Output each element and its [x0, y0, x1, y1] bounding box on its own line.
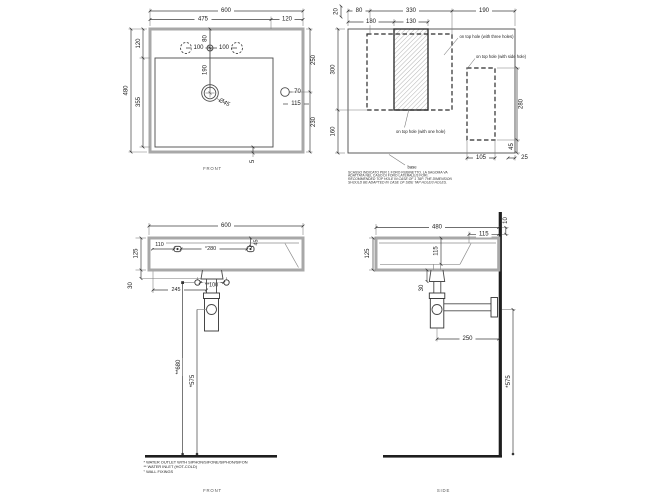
- floor-line-side: [383, 455, 502, 458]
- side-drain-deck: [429, 270, 444, 282]
- side-trap-nut: [429, 293, 445, 299]
- dim-tap-pitch-left: 100: [193, 45, 204, 51]
- note-side-hole: on top hole (with side hole): [476, 54, 527, 59]
- plan-view: 100 100 80 190 Ø45 70 115 600 475 120: [124, 8, 318, 171]
- side-trap-body: [430, 299, 444, 329]
- dim-bowl-height: 355: [136, 96, 142, 107]
- dim-top-offset: 20: [334, 8, 340, 15]
- recommended-hole-hatched: [394, 29, 428, 110]
- dim-fixing-pitch: °280: [205, 246, 216, 252]
- front-elevation-label: FRONT: [203, 488, 222, 493]
- dim-back-deck: 115: [479, 231, 489, 237]
- note-one-hole: on top hole (with one hole): [396, 129, 446, 134]
- dim-front-width: 600: [221, 223, 232, 229]
- dim-inlet-height: **680: [176, 359, 182, 374]
- dim-side-cutout-edge: 25: [521, 155, 528, 161]
- dim-depth: 480: [432, 225, 443, 231]
- dim-overflow-to-bottom: 230: [311, 116, 317, 127]
- floor-line-front: [145, 455, 277, 458]
- dim-tap-pitch-right: 100: [219, 45, 230, 51]
- dim-hatch-width: 130: [406, 19, 417, 25]
- dim-outlet-height-front: *575: [190, 374, 196, 387]
- dim-plan-width: 600: [221, 8, 232, 14]
- side-hole-cutout-dashed: [467, 68, 495, 140]
- dim-left-to-hatch: 180: [366, 19, 377, 25]
- dim-trap-reach: 250: [462, 336, 473, 342]
- dim-cutout-height: 300: [331, 64, 337, 75]
- dim-bowl-width: 475: [198, 17, 209, 23]
- front-elevation-view: 600 125 30 110 °280 45 **100 245: [128, 223, 303, 493]
- dim-side-cutout-bottom: 45: [509, 143, 515, 150]
- dim-tap-to-drain: 190: [203, 64, 209, 75]
- dim-fixing-left: 110: [155, 242, 164, 248]
- dim-bowl-depth: 115: [433, 246, 439, 256]
- note-base: base: [408, 165, 418, 170]
- dim-cutout-span: 330: [406, 8, 417, 14]
- water-inlet-right: [224, 280, 229, 285]
- dim-wall-gap: 10: [503, 217, 509, 224]
- dim-left-to-cutout: 80: [356, 8, 363, 14]
- trap-nut: [204, 293, 220, 299]
- caption-en-line2: SHOULD BE ADAPTED IN CASE OF SIDE TAP HO…: [348, 181, 447, 185]
- dim-drain-offset: 245: [172, 287, 181, 293]
- wall-outlet-flange: [491, 298, 498, 318]
- technical-drawing-sheet: 100 100 80 190 Ø45 70 115 600 475 120: [0, 0, 667, 500]
- dim-fixing-drop: 45: [254, 240, 260, 246]
- note-three-holes: on top hole (with three holes): [460, 34, 515, 39]
- plan-view-label: FRONT: [203, 166, 222, 171]
- dim-top-to-overflow: 250: [311, 54, 317, 65]
- dim-overflow-inset: 115: [291, 101, 301, 107]
- template-view: 80 330 190 20 180 130 300 160 280 45: [331, 6, 529, 185]
- dim-bottom-wall: 5: [250, 159, 256, 163]
- dim-right-span: 190: [479, 8, 490, 14]
- template-base-outline: [348, 29, 515, 153]
- dim-rim-depth: 120: [136, 38, 142, 49]
- side-elevation-view: 480 115 10 125 115 30 250: [365, 212, 516, 493]
- dim-outlet-height-side: *575: [506, 375, 512, 388]
- dim-deck-width: 120: [282, 17, 293, 23]
- dim-apron: 30: [128, 282, 134, 289]
- dim-side-cutout-height: 280: [519, 98, 525, 109]
- dim-side-cutout-width: 105: [476, 155, 487, 161]
- drawing-canvas: 100 100 80 190 Ø45 70 115 600 475 120: [0, 0, 667, 500]
- water-inlet-left: [195, 280, 200, 285]
- dim-plan-height: 480: [124, 85, 130, 96]
- dim-below-cutout: 160: [331, 126, 337, 137]
- dim-rim-height: 125: [134, 248, 140, 259]
- side-elevation-label: SIDE: [437, 488, 450, 493]
- dim-side-apron: 30: [419, 284, 425, 291]
- dim-side-rim-height: 125: [365, 248, 371, 259]
- footnote-wall-fixings: ° WALL FIXINGS: [144, 469, 174, 474]
- dim-tap-inset: 80: [203, 35, 209, 42]
